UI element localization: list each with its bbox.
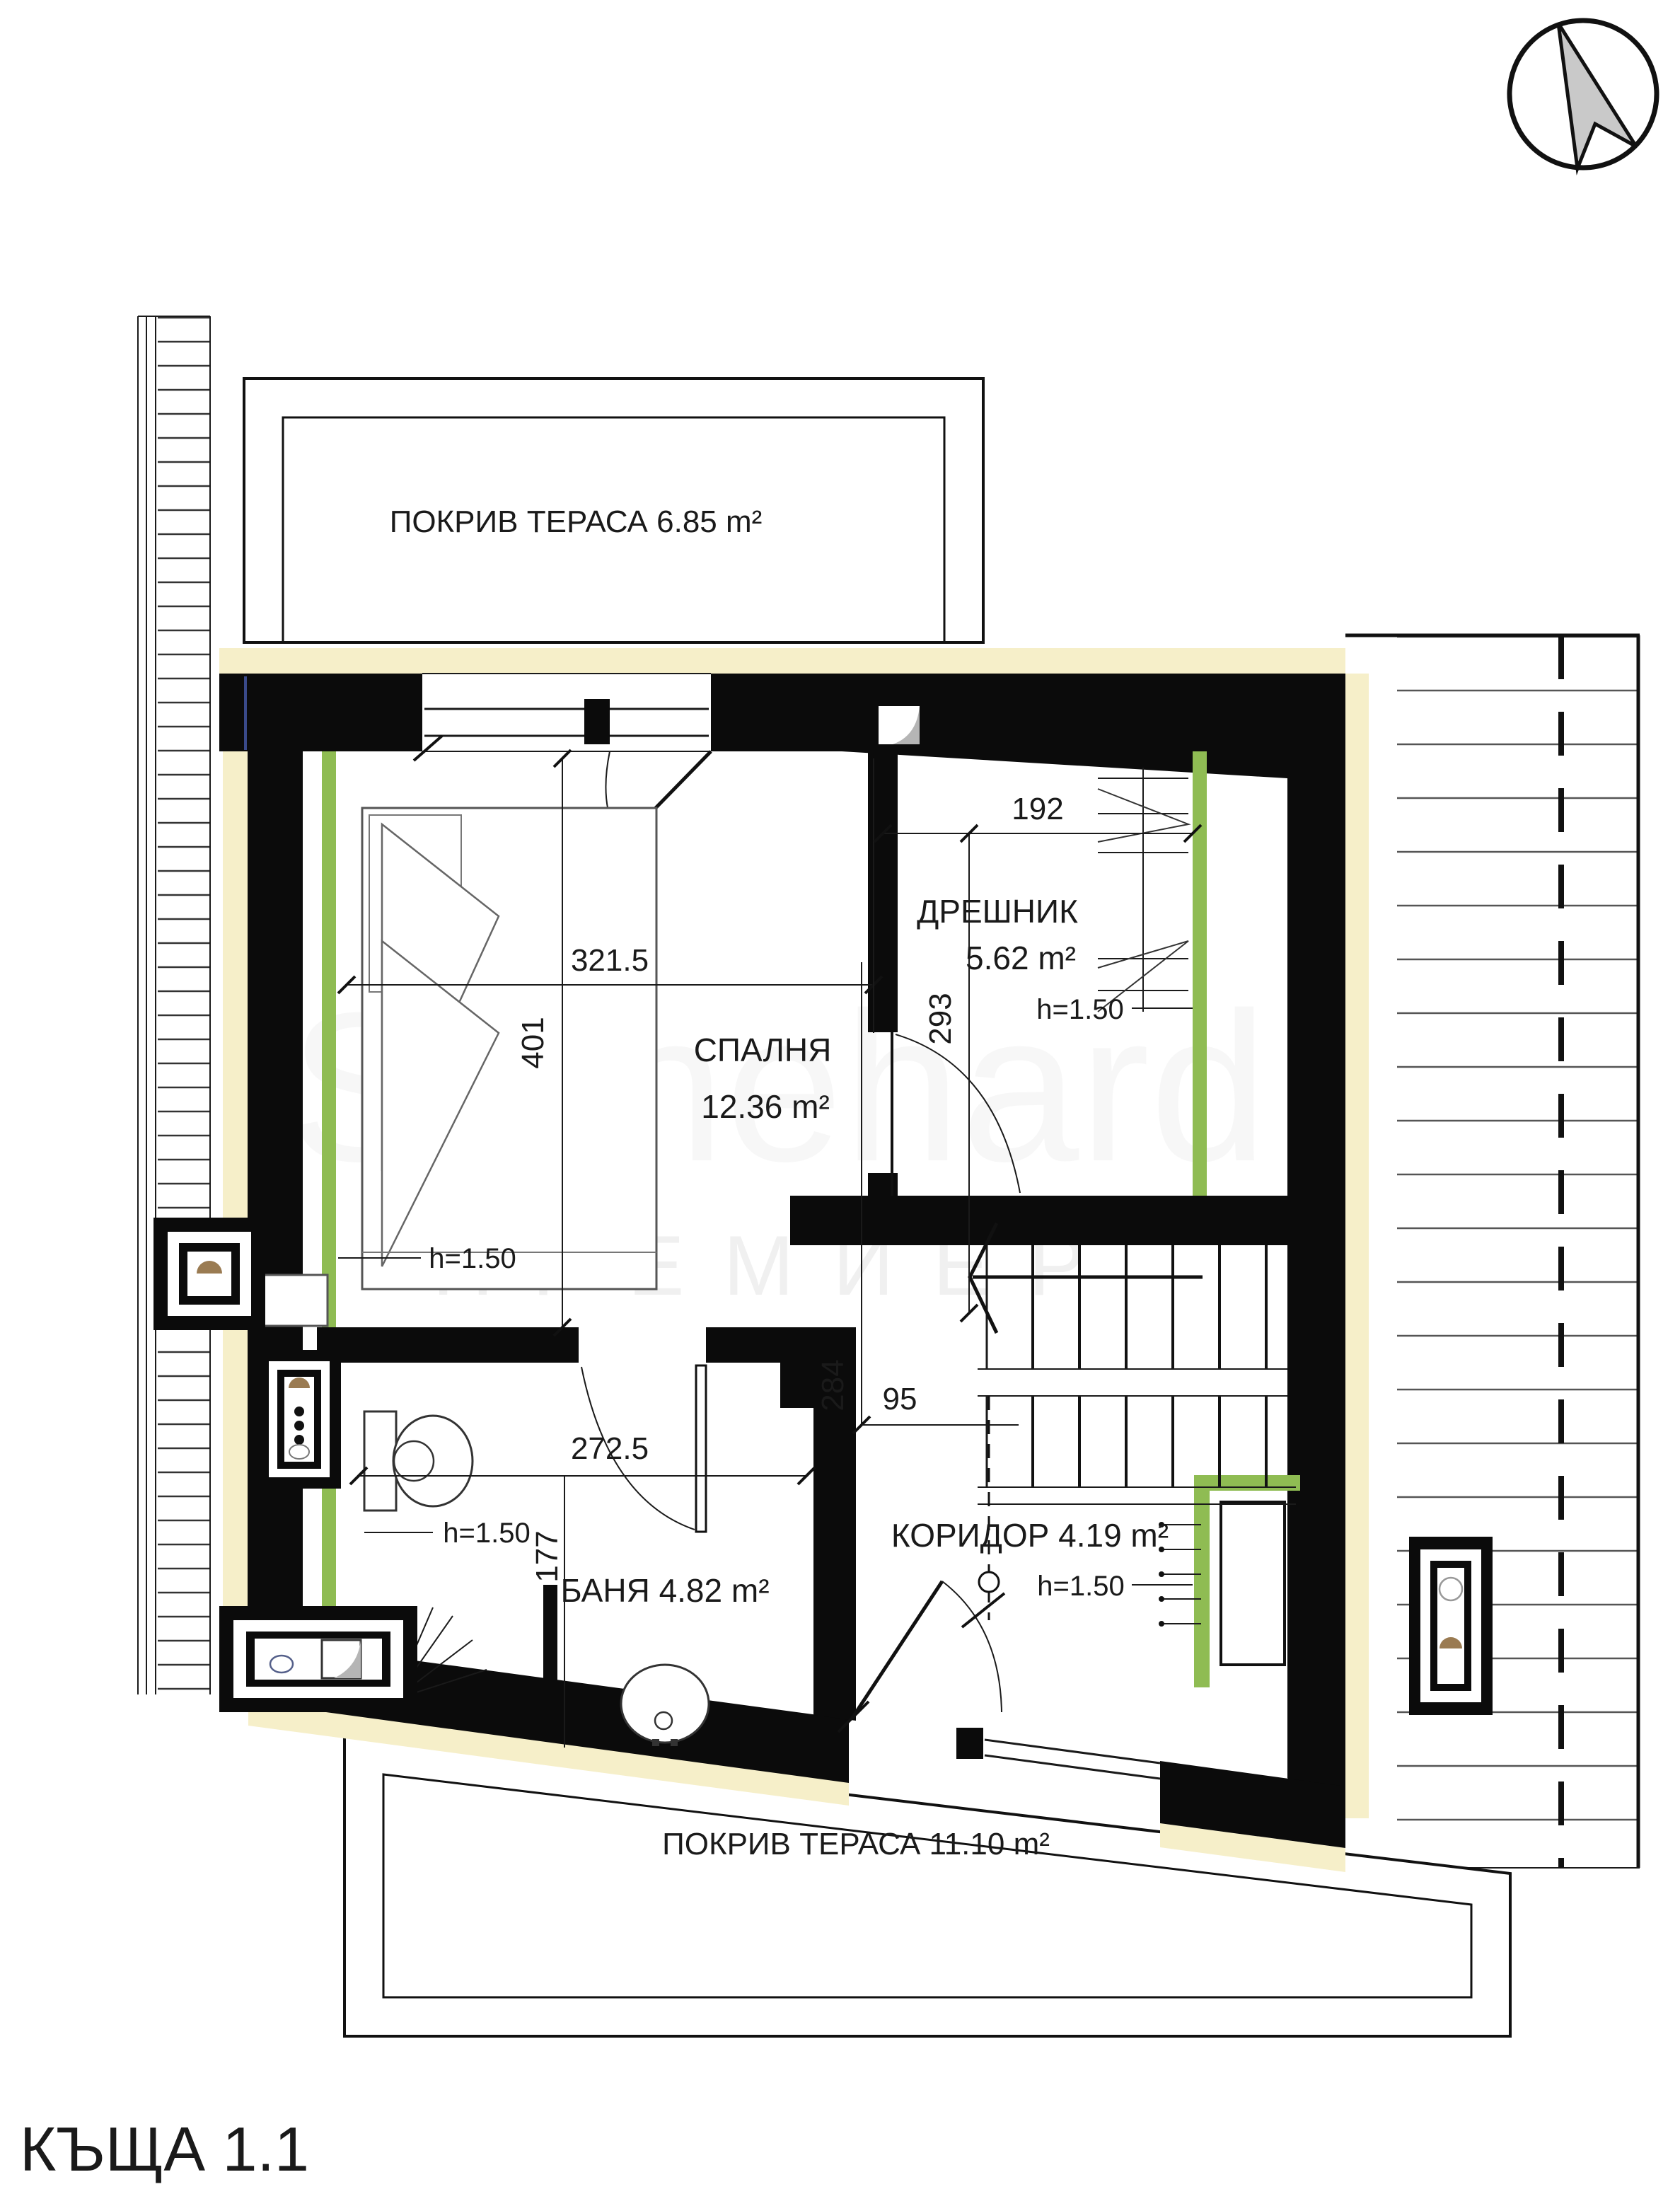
bathroom-label: БАНЯ 4.82 m² xyxy=(560,1572,769,1609)
corridor-height-label: h=1.50 xyxy=(1037,1571,1124,1602)
dressing-height-label: h=1.50 xyxy=(1036,994,1123,1025)
dim-hall-depth: 284 xyxy=(816,1359,850,1411)
roof-window-left-3 xyxy=(219,1606,417,1712)
bedroom-height-label: h=1.50 xyxy=(429,1243,516,1274)
roof-window-left-1 xyxy=(153,1218,265,1330)
bathroom-height-label: h=1.50 xyxy=(443,1518,530,1549)
corridor-duct-niche xyxy=(1221,1502,1285,1665)
floor-plan-page: Stonehard ПРЕМИЕР ПОКРИВ ТЕРАСА 6.85 m² … xyxy=(0,0,1680,2206)
north-arrow-icon xyxy=(1510,21,1657,168)
bedroom-name-label: СПАЛНЯ xyxy=(694,1032,832,1068)
top-terrace-label: ПОКРИВ ТЕРАСА 6.85 m² xyxy=(390,504,763,539)
bottom-terrace-label: ПОКРИВ ТЕРАСА 11.10 m² xyxy=(662,1827,1050,1861)
corridor-label: КОРИДОР 4.19 m² xyxy=(891,1517,1169,1554)
top-terrace: ПОКРИВ ТЕРАСА 6.85 m² xyxy=(244,379,983,642)
left-roof-hatch xyxy=(138,316,210,1694)
bedroom-area-label: 12.36 m² xyxy=(701,1088,830,1125)
dim-bathroom-width: 272.5 xyxy=(571,1431,649,1466)
roof-window-right xyxy=(1409,1537,1493,1715)
dressing-area-label: 5.62 m² xyxy=(966,940,1076,976)
dim-bedroom-width: 321.5 xyxy=(571,943,649,978)
dim-hall-width: 95 xyxy=(883,1382,917,1416)
roof-window-left-2 xyxy=(257,1350,341,1489)
dim-dressing-width: 192 xyxy=(1012,792,1063,826)
divider-niche xyxy=(868,698,932,753)
dim-bathroom-depth: 177 xyxy=(530,1530,564,1582)
dressing-name-label: ДРЕШНИК xyxy=(917,893,1078,930)
floor-plan-canvas: Stonehard ПРЕМИЕР ПОКРИВ ТЕРАСА 6.85 m² … xyxy=(0,0,1680,2206)
corridor-exit-door xyxy=(838,1581,1160,1779)
dim-dressing-depth: 293 xyxy=(923,993,958,1044)
toilet-fixture xyxy=(364,1411,473,1511)
dim-bedroom-depth: 401 xyxy=(516,1017,550,1068)
plan-title: КЪЩА 1.1 xyxy=(20,2114,309,2184)
